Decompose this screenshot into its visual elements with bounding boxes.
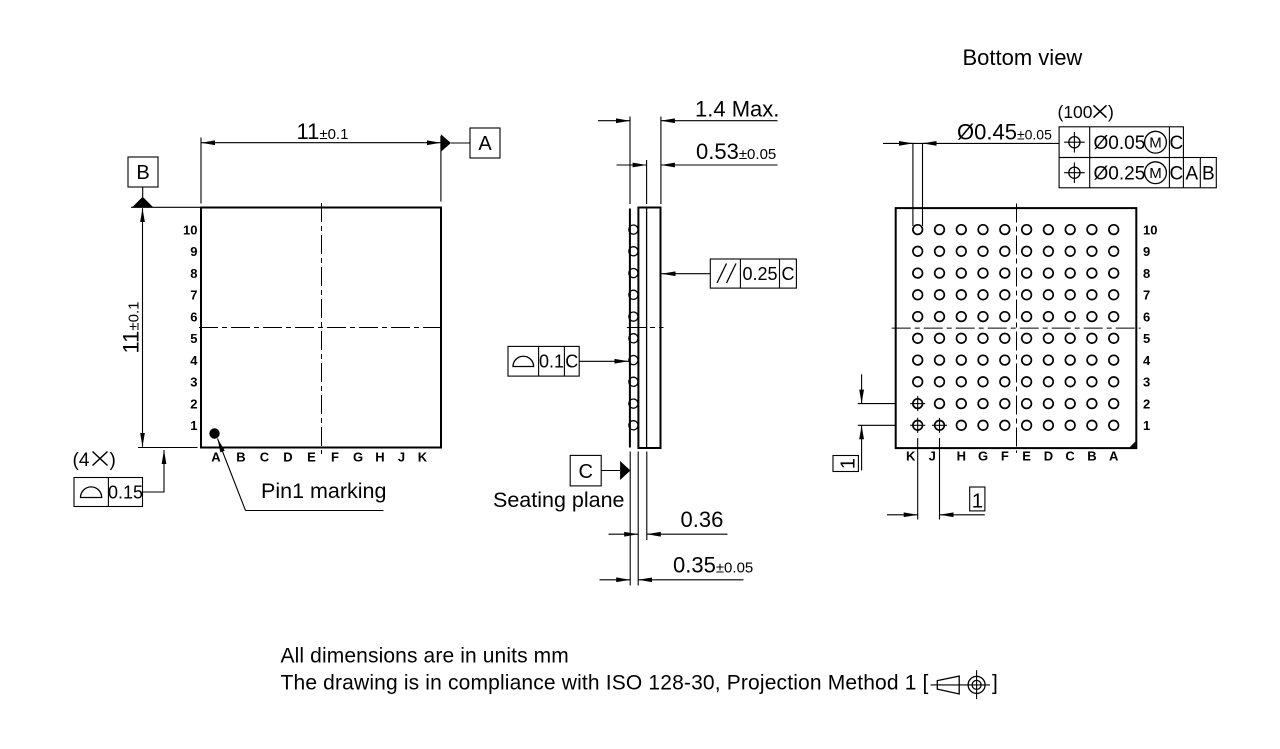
svg-text:The drawing is in compliance w: The drawing is in compliance with ISO 12… [281, 671, 929, 694]
svg-text:6: 6 [190, 309, 197, 324]
svg-text:C: C [1065, 449, 1075, 464]
svg-text:Seating plane: Seating plane [493, 488, 625, 512]
svg-text:8: 8 [190, 266, 197, 281]
svg-text:): ) [110, 450, 116, 471]
svg-text:0.15: 0.15 [108, 483, 143, 503]
svg-text:C: C [578, 461, 592, 483]
svg-text:E: E [307, 450, 316, 465]
svg-text:5: 5 [1143, 331, 1150, 346]
svg-text:10: 10 [183, 222, 197, 237]
svg-text:C: C [260, 450, 270, 465]
svg-text:0.25: 0.25 [742, 264, 777, 284]
svg-text:C: C [1170, 163, 1184, 184]
svg-text:D: D [1044, 449, 1053, 464]
svg-text:4: 4 [1143, 353, 1151, 368]
svg-text:G: G [978, 449, 988, 464]
svg-text:1: 1 [838, 458, 860, 469]
svg-text:G: G [353, 450, 363, 465]
svg-text:10: 10 [1143, 222, 1157, 237]
svg-text:B: B [1087, 449, 1096, 464]
svg-text:7: 7 [1143, 288, 1150, 303]
svg-text:(4: (4 [73, 450, 90, 471]
svg-text:1.4 Max.: 1.4 Max. [695, 96, 779, 121]
svg-text:A: A [211, 450, 221, 465]
svg-text:0.1: 0.1 [539, 352, 564, 372]
svg-text:D: D [283, 450, 292, 465]
svg-text:A: A [1109, 449, 1119, 464]
svg-text:1: 1 [972, 490, 983, 513]
svg-text:1: 1 [190, 418, 197, 433]
svg-text:0.36: 0.36 [681, 507, 724, 532]
svg-text:7: 7 [190, 288, 197, 303]
svg-text:F: F [1001, 449, 1009, 464]
svg-text:C: C [1170, 133, 1184, 154]
svg-text:2: 2 [190, 396, 197, 411]
svg-text:B: B [236, 450, 245, 465]
svg-text:M: M [1149, 135, 1162, 152]
svg-text:4: 4 [190, 353, 198, 368]
svg-text:A: A [1186, 163, 1199, 184]
svg-text:9: 9 [190, 244, 197, 259]
svg-text:H: H [957, 449, 966, 464]
svg-text:]: ] [992, 671, 998, 694]
svg-text:5: 5 [190, 331, 197, 346]
svg-text:): ) [1108, 102, 1114, 122]
svg-text:Ø0.05: Ø0.05 [1094, 133, 1146, 154]
svg-text:1: 1 [1143, 418, 1150, 433]
svg-text:3: 3 [1143, 375, 1150, 390]
svg-text:K: K [906, 449, 916, 464]
svg-text:All dimensions are in units mm: All dimensions are in units mm [281, 645, 569, 668]
svg-text:C: C [565, 352, 578, 372]
svg-text:A: A [478, 133, 492, 155]
svg-text:B: B [1202, 163, 1215, 184]
svg-text:3: 3 [190, 375, 197, 390]
svg-text:(100: (100 [1058, 102, 1093, 122]
svg-text:9: 9 [1143, 244, 1150, 259]
svg-text:M: M [1149, 165, 1162, 182]
svg-text:F: F [331, 450, 339, 465]
svg-text:J: J [398, 450, 405, 465]
svg-text:8: 8 [1143, 266, 1150, 281]
svg-text:H: H [375, 450, 384, 465]
svg-text:E: E [1022, 449, 1031, 464]
svg-text:6: 6 [1143, 309, 1150, 324]
svg-text:C: C [782, 264, 795, 284]
svg-text:Pin1 marking: Pin1 marking [261, 479, 386, 503]
svg-text:J: J [929, 449, 936, 464]
svg-text:Bottom view: Bottom view [963, 45, 1083, 70]
svg-text:Ø0.25: Ø0.25 [1094, 163, 1146, 184]
svg-text:B: B [136, 162, 149, 184]
svg-text:K: K [418, 450, 428, 465]
svg-text:2: 2 [1143, 396, 1150, 411]
